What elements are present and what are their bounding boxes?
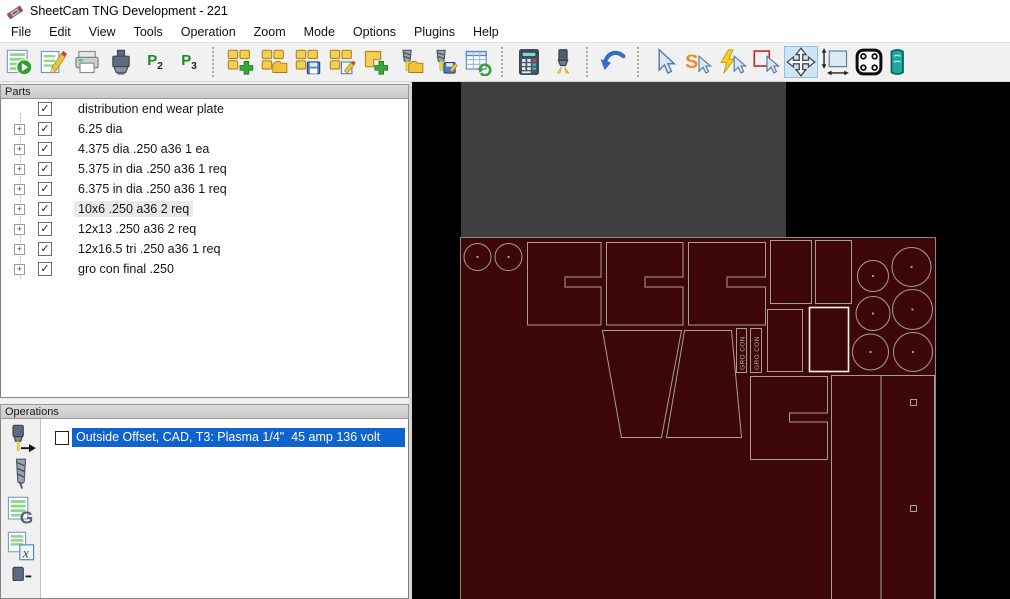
parts-panel-title: Parts bbox=[0, 84, 409, 99]
material-sheet[interactable] bbox=[461, 238, 936, 599]
clipped-right-icon bbox=[889, 47, 917, 77]
part-label[interactable]: 12x13 .250 a36 2 req bbox=[74, 221, 200, 237]
menu-operation[interactable]: Operation bbox=[172, 23, 245, 41]
part-row-5375-dia[interactable]: + ✓ 5.375 in dia .250 a36 1 req bbox=[1, 159, 408, 179]
expander-plus-icon[interactable]: + bbox=[14, 144, 25, 155]
menu-file[interactable]: File bbox=[2, 23, 40, 41]
part-row-12x165-tri[interactable]: + ✓ 12x16.5 tri .250 a36 1 req bbox=[1, 239, 408, 259]
post2-button[interactable]: P2 bbox=[138, 46, 172, 78]
part-label[interactable]: 4.375 dia .250 a36 1 ea bbox=[74, 141, 213, 157]
save-job-icon bbox=[294, 48, 322, 76]
part-label[interactable]: 5.375 in dia .250 a36 1 req bbox=[74, 161, 231, 177]
add-part-icon bbox=[362, 48, 390, 76]
expander-plus-icon[interactable]: + bbox=[14, 164, 25, 175]
part-row-12x13[interactable]: + ✓ 12x13 .250 a36 2 req bbox=[1, 219, 408, 239]
expander-plus-icon[interactable]: + bbox=[14, 244, 25, 255]
post2-icon: P2 bbox=[147, 52, 163, 72]
window-title: SheetCam TNG Development - 221 bbox=[30, 4, 228, 18]
calculator-button[interactable] bbox=[512, 46, 546, 78]
print-button[interactable] bbox=[70, 46, 104, 78]
open-job-icon bbox=[260, 48, 288, 76]
toolbar-separator bbox=[501, 47, 508, 77]
toolbar-separator bbox=[637, 47, 644, 77]
center-mark bbox=[870, 352, 871, 353]
clipped-bottom-icon[interactable] bbox=[8, 565, 34, 581]
select-contour-icon: S bbox=[684, 48, 714, 76]
menu-options[interactable]: Options bbox=[344, 23, 405, 41]
operations-list[interactable]: G x bbox=[0, 419, 409, 599]
expander-plus-icon[interactable]: + bbox=[14, 204, 25, 215]
save-toolset-button[interactable] bbox=[427, 46, 461, 78]
title-bar: SheetCam TNG Development - 221 bbox=[0, 0, 1010, 22]
part-label[interactable]: distribution end wear plate bbox=[74, 101, 228, 117]
gro-con-label-2: GRO CON bbox=[754, 336, 761, 370]
part-row-625-dia[interactable]: + ✓ 6.25 dia bbox=[1, 119, 408, 139]
move-parts-icon bbox=[786, 47, 816, 77]
drawing-canvas[interactable]: GRO CON GRO CON bbox=[412, 82, 1010, 599]
part-checkbox[interactable]: ✓ bbox=[38, 262, 52, 276]
measure-button[interactable] bbox=[818, 46, 852, 78]
select-rectangle-icon bbox=[752, 48, 782, 76]
machine-table-region bbox=[461, 82, 786, 237]
new-job-button[interactable] bbox=[223, 46, 257, 78]
expander-plus-icon[interactable]: + bbox=[14, 124, 25, 135]
part-row-4375-dia[interactable]: + ✓ 4.375 dia .250 a36 1 ea bbox=[1, 139, 408, 159]
operation-row[interactable]: Outside Offset, CAD, T3: Plasma 1/4" 45 … bbox=[55, 428, 405, 447]
select-rapid-icon bbox=[718, 48, 748, 76]
part-row-gro-con-final[interactable]: + ✓ gro con final .250 bbox=[1, 259, 408, 279]
edit-plate-icon bbox=[854, 47, 884, 77]
gcode-operation-icon[interactable]: G bbox=[6, 495, 36, 527]
left-dock: Parts ✓ distribution end wear plate + ✓ … bbox=[0, 82, 409, 599]
edit-job-button[interactable] bbox=[325, 46, 359, 78]
post3-icon: P3 bbox=[181, 52, 197, 72]
part-checkbox[interactable]: ✓ bbox=[38, 102, 52, 116]
operations-panel: Operations bbox=[0, 404, 409, 599]
add-part-button[interactable] bbox=[359, 46, 393, 78]
svg-text:S: S bbox=[685, 51, 698, 73]
clipped-right-button[interactable] bbox=[886, 46, 920, 78]
calculator-icon bbox=[516, 48, 542, 76]
select-cursor-button[interactable] bbox=[648, 46, 682, 78]
part-checkbox[interactable]: ✓ bbox=[38, 182, 52, 196]
select-rapid-button[interactable] bbox=[716, 46, 750, 78]
part-row-6375-dia[interactable]: + ✓ 6.375 in dia .250 a36 1 req bbox=[1, 179, 408, 199]
operations-panel-title: Operations bbox=[0, 404, 409, 419]
open-job-button[interactable] bbox=[257, 46, 291, 78]
parts-panel: Parts ✓ distribution end wear plate + ✓ … bbox=[0, 84, 409, 398]
part-row-10x6[interactable]: + ✓ 10x6 .250 a36 2 req bbox=[1, 199, 408, 219]
select-cursor-icon bbox=[651, 48, 679, 76]
part-label-highlighted[interactable]: 10x6 .250 a36 2 req bbox=[74, 201, 193, 217]
refresh-table-button[interactable] bbox=[461, 46, 495, 78]
new-job-icon bbox=[226, 48, 254, 76]
operation-checkbox[interactable] bbox=[55, 431, 69, 445]
expander-plus-icon[interactable]: + bbox=[14, 184, 25, 195]
part-label[interactable]: gro con final .250 bbox=[74, 261, 178, 277]
menu-help[interactable]: Help bbox=[464, 23, 508, 41]
center-mark bbox=[911, 267, 912, 268]
menu-zoom[interactable]: Zoom bbox=[245, 23, 295, 41]
part-label[interactable]: 6.25 dia bbox=[74, 121, 126, 137]
post3-button[interactable]: P3 bbox=[172, 46, 206, 78]
main-toolbar: P2 P3 bbox=[0, 42, 1010, 82]
print-icon bbox=[73, 48, 101, 76]
menu-bar: File Edit View Tools Operation Zoom Mode… bbox=[0, 22, 1010, 42]
part-checkbox[interactable]: ✓ bbox=[38, 162, 52, 176]
expander-plus-icon[interactable]: + bbox=[14, 264, 25, 275]
simulate-torch-icon bbox=[549, 48, 577, 76]
undo-button[interactable] bbox=[597, 46, 631, 78]
nest-view[interactable]: GRO CON GRO CON bbox=[412, 82, 1010, 599]
open-toolset-icon bbox=[396, 48, 424, 76]
edit-job-icon bbox=[328, 48, 356, 76]
part-checkbox[interactable]: ✓ bbox=[38, 122, 52, 136]
run-postprocess-icon bbox=[5, 48, 33, 76]
edit-plate-button[interactable] bbox=[852, 46, 886, 78]
sheetcam-window: SheetCam TNG Development - 221 File Edit… bbox=[0, 0, 1010, 599]
menu-plugins[interactable]: Plugins bbox=[405, 23, 464, 41]
toolbar-separator bbox=[212, 47, 219, 77]
machine-connection-icon bbox=[107, 48, 135, 76]
center-mark bbox=[873, 276, 874, 277]
open-toolset-button[interactable] bbox=[393, 46, 427, 78]
part-row-distribution-end-wear-plate[interactable]: ✓ distribution end wear plate bbox=[1, 99, 408, 119]
edit-postprocess-icon bbox=[39, 48, 67, 76]
center-mark bbox=[913, 352, 914, 353]
center-mark bbox=[477, 257, 478, 258]
menu-tools[interactable]: Tools bbox=[125, 23, 172, 41]
part-checkbox[interactable]: ✓ bbox=[38, 222, 52, 236]
gro-con-label-1: GRO CON bbox=[740, 336, 747, 370]
menu-edit[interactable]: Edit bbox=[40, 23, 80, 41]
move-parts-button[interactable] bbox=[784, 46, 818, 78]
operation-label[interactable]: Outside Offset, CAD, T3: Plasma 1/4" 45 … bbox=[72, 428, 405, 447]
measure-icon bbox=[820, 47, 850, 77]
part-checkbox[interactable]: ✓ bbox=[38, 142, 52, 156]
save-job-button[interactable] bbox=[291, 46, 325, 78]
jet-cut-operation-icon[interactable] bbox=[6, 423, 36, 455]
run-postprocess-button[interactable] bbox=[2, 46, 36, 78]
refresh-table-icon bbox=[464, 48, 492, 76]
part-checkbox[interactable]: ✓ bbox=[38, 202, 52, 216]
center-mark bbox=[912, 309, 913, 310]
toolbar-separator bbox=[586, 47, 593, 77]
part-checkbox[interactable]: ✓ bbox=[38, 242, 52, 256]
app-icon bbox=[7, 4, 23, 19]
menu-mode[interactable]: Mode bbox=[295, 23, 344, 41]
expander-plus-icon[interactable]: + bbox=[14, 224, 25, 235]
part-label[interactable]: 6.375 in dia .250 a36 1 req bbox=[74, 181, 231, 197]
svg-text:x: x bbox=[21, 545, 28, 560]
select-contour-button[interactable]: S bbox=[682, 46, 716, 78]
machine-connection-button[interactable] bbox=[104, 46, 138, 78]
operations-toolbar: G x bbox=[1, 419, 41, 598]
menu-view[interactable]: View bbox=[80, 23, 125, 41]
svg-text:G: G bbox=[19, 508, 32, 527]
part-label[interactable]: 12x16.5 tri .250 a36 1 req bbox=[74, 241, 224, 257]
simulate-torch-button[interactable] bbox=[546, 46, 580, 78]
edit-postprocess-button[interactable] bbox=[36, 46, 70, 78]
center-mark bbox=[873, 313, 874, 314]
undo-icon bbox=[599, 48, 629, 76]
work-area: Parts ✓ distribution end wear plate + ✓ … bbox=[0, 82, 1010, 599]
center-mark bbox=[508, 257, 509, 258]
drill-operation-icon[interactable] bbox=[8, 458, 34, 492]
variables-operation-icon[interactable]: x bbox=[6, 530, 36, 562]
parts-tree[interactable]: ✓ distribution end wear plate + ✓ 6.25 d… bbox=[0, 99, 409, 398]
save-toolset-icon bbox=[430, 48, 458, 76]
select-rectangle-button[interactable] bbox=[750, 46, 784, 78]
